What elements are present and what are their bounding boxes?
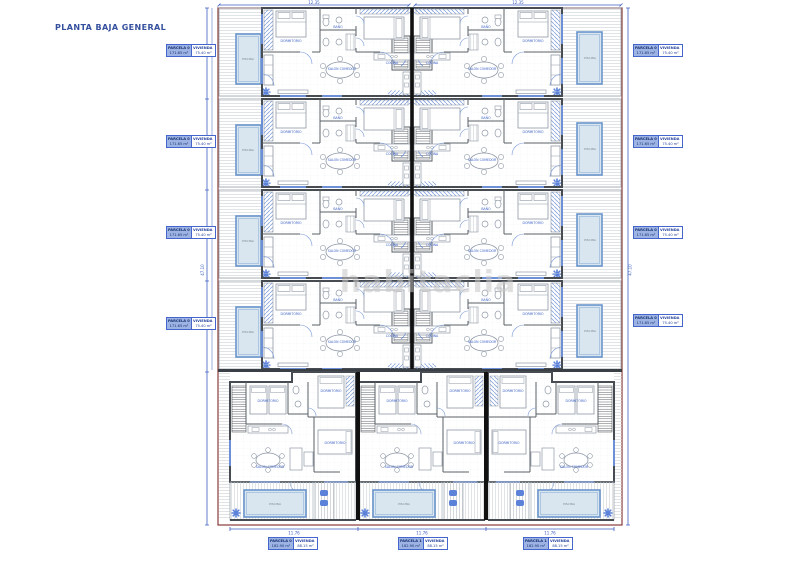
room-label: COCINA: [426, 61, 439, 65]
room-label: SALON COMEDOR: [468, 67, 497, 71]
parcela-cell: PARCELA 09182.90 m²: [269, 538, 293, 549]
room-label: PISCINA: [242, 57, 255, 61]
room-label: DORMITORIO: [566, 399, 587, 403]
room-label: COCINA: [426, 152, 439, 156]
parcela-cell: PARCELA 02171.65 m²: [634, 45, 658, 56]
room-label: DORMITORIO: [523, 39, 544, 43]
parcel-table: PARCELA 04171.65 m²VIVIENDA 0475.40 m²: [633, 135, 683, 148]
parcela-cell: PARCELA 01171.65 m²: [167, 45, 191, 56]
party-wall: [484, 372, 488, 520]
room-label: BAÑO: [333, 24, 343, 29]
parcela-cell: PARCELA 03171.65 m²: [167, 136, 191, 147]
room-label: DORMITORIO: [523, 312, 544, 316]
parcel-table: PARCELA 07171.65 m²VIVIENDA 0775.40 m²: [166, 317, 216, 330]
watermark: habitaclia: [340, 265, 517, 300]
parcel-table: PARCELA 05171.65 m²VIVIENDA 0575.40 m²: [166, 226, 216, 239]
room-label: SALON COMEDOR: [328, 67, 357, 71]
room-label: DORMITORIO: [450, 389, 471, 393]
room-label: SALON COMEDOR: [328, 158, 357, 162]
dim-bottom-1: 11.76: [288, 531, 300, 536]
vivienda-cell: VIVIENDA 0475.40 m²: [658, 136, 682, 147]
room-label: SALON COMEDOR: [560, 465, 589, 469]
room-label: DORMITORIO: [387, 399, 408, 403]
room-label: SALON COMEDOR: [468, 249, 497, 253]
floor-plan-svg: 12.35 12.35 47.10 47.10 11.76 11.76 11.7…: [0, 0, 800, 565]
room-label: COCINA: [386, 61, 399, 65]
parcel-table: PARCELA 06171.65 m²VIVIENDA 0675.40 m²: [633, 226, 683, 239]
party-wall: [410, 8, 414, 370]
dim-bottom-3: 11.76: [544, 531, 556, 536]
vivienda-cell: VIVIENDA 0988.15 m²: [293, 538, 317, 549]
dim-top-left: 12.35: [308, 0, 320, 5]
vivienda-cell: VIVIENDA 0175.40 m²: [191, 45, 215, 56]
vivienda-cell: VIVIENDA 0375.40 m²: [191, 136, 215, 147]
dim-bottom-2: 11.76: [416, 531, 428, 536]
room-label: SALON COMEDOR: [328, 340, 357, 344]
parcela-cell: PARCELA 11182.90 m²: [524, 538, 548, 549]
vivienda-cell: VIVIENDA 0675.40 m²: [658, 227, 682, 238]
room-label: PISCINA: [584, 329, 597, 333]
parcel-table: PARCELA 02171.65 m²VIVIENDA 0275.40 m²: [633, 44, 683, 57]
parcela-cell: PARCELA 07171.65 m²: [167, 318, 191, 329]
room-label: PISCINA: [584, 147, 597, 151]
room-label: BAÑO: [481, 115, 491, 120]
parcela-cell: PARCELA 10182.90 m²: [399, 538, 423, 549]
room-label: PISCINA: [584, 56, 597, 60]
vivienda-cell: VIVIENDA 0775.40 m²: [191, 318, 215, 329]
room-label: DORMITORIO: [281, 39, 302, 43]
vivienda-cell: VIVIENDA 0875.40 m²: [658, 315, 682, 326]
party-wall: [356, 372, 360, 520]
room-label: PISCINA: [242, 148, 255, 152]
room-label: DORMITORIO: [454, 441, 475, 445]
parcel-table: PARCELA 10182.90 m²VIVIENDA 1088.15 m²: [398, 537, 448, 550]
room-label: BAÑO: [481, 206, 491, 211]
floor-plan-page: PLANTA BAJA GENERAL: [0, 0, 800, 565]
room-label: SALON COMEDOR: [328, 249, 357, 253]
room-label: DORMITORIO: [523, 130, 544, 134]
parcel-table: PARCELA 03171.65 m²VIVIENDA 0375.40 m²: [166, 135, 216, 148]
room-label: DORMITORIO: [325, 441, 346, 445]
room-label: BAÑO: [333, 115, 343, 120]
room-label: PISCINA: [584, 238, 597, 242]
room-label: DORMITORIO: [523, 221, 544, 225]
parcel-table: PARCELA 01171.65 m²VIVIENDA 0175.40 m²: [166, 44, 216, 57]
parcela-cell: PARCELA 08171.65 m²: [634, 315, 658, 326]
room-label: PISCINA: [242, 239, 255, 243]
parcela-cell: PARCELA 04171.65 m²: [634, 136, 658, 147]
room-label: SALON COMEDOR: [385, 465, 414, 469]
room-label: PISCINA: [269, 502, 282, 506]
parcel-table: PARCELA 09182.90 m²VIVIENDA 0988.15 m²: [268, 537, 318, 550]
room-label: PISCINA: [398, 502, 411, 506]
room-label: BAÑO: [333, 206, 343, 211]
room-label: BAÑO: [481, 24, 491, 29]
parcela-cell: PARCELA 06171.65 m²: [634, 227, 658, 238]
room-label: DORMITORIO: [499, 441, 520, 445]
dim-top-right: 12.35: [512, 0, 524, 5]
upper-section: [219, 8, 621, 372]
room-label: SALON COMEDOR: [468, 340, 497, 344]
parcel-table: PARCELA 11182.90 m²VIVIENDA 1188.15 m²: [523, 537, 573, 550]
room-label: DORMITORIO: [258, 399, 279, 403]
room-label: SALON COMEDOR: [468, 158, 497, 162]
room-label: DORMITORIO: [503, 389, 524, 393]
vivienda-cell: VIVIENDA 0275.40 m²: [658, 45, 682, 56]
room-label: DORMITORIO: [281, 221, 302, 225]
vivienda-cell: VIVIENDA 1188.15 m²: [548, 538, 572, 549]
parcela-cell: PARCELA 05171.65 m²: [167, 227, 191, 238]
vivienda-cell: VIVIENDA 1088.15 m²: [423, 538, 447, 549]
room-label: DORMITORIO: [281, 312, 302, 316]
room-label: COCINA: [386, 152, 399, 156]
bottom-section: [219, 372, 622, 520]
dim-right: 47.10: [628, 264, 633, 276]
dim-left: 47.10: [200, 264, 205, 276]
room-label: COCINA: [386, 334, 399, 338]
room-label: SALON COMEDOR: [256, 465, 285, 469]
room-label: PISCINA: [563, 502, 576, 506]
room-label: COCINA: [426, 243, 439, 247]
room-label: PISCINA: [242, 330, 255, 334]
room-label: COCINA: [426, 334, 439, 338]
vivienda-cell: VIVIENDA 0575.40 m²: [191, 227, 215, 238]
parcel-table: PARCELA 08171.65 m²VIVIENDA 0875.40 m²: [633, 314, 683, 327]
room-label: DORMITORIO: [281, 130, 302, 134]
room-label: COCINA: [386, 243, 399, 247]
room-label: DORMITORIO: [321, 389, 342, 393]
